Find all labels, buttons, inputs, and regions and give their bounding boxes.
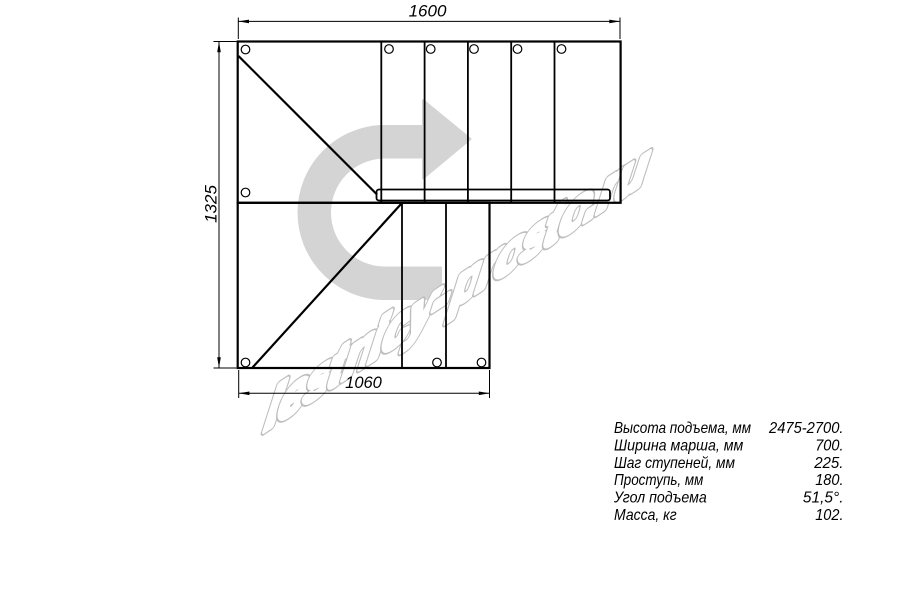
svg-text:Масса, кг: Масса, кг — [614, 507, 677, 524]
svg-text:225.: 225. — [813, 455, 843, 472]
svg-text:2475-2700.: 2475-2700. — [768, 420, 843, 437]
svg-text:Шаг ступеней, мм: Шаг ступеней, мм — [614, 455, 735, 472]
svg-text:Ширина марша, мм: Ширина марша, мм — [614, 437, 743, 454]
svg-text:51,5°.: 51,5°. — [803, 490, 844, 507]
svg-text:Высота подъема, мм: Высота подъема, мм — [614, 420, 751, 437]
svg-text:Проступь, мм: Проступь, мм — [614, 472, 703, 489]
svg-text:Угол подъема: Угол подъема — [613, 490, 707, 507]
svg-text:700.: 700. — [815, 437, 843, 454]
svg-text:1060: 1060 — [345, 374, 383, 392]
svg-text:102.: 102. — [815, 507, 843, 524]
svg-text:1600: 1600 — [409, 2, 447, 21]
svg-text:1325: 1325 — [202, 185, 221, 223]
svg-text:180.: 180. — [815, 472, 843, 489]
